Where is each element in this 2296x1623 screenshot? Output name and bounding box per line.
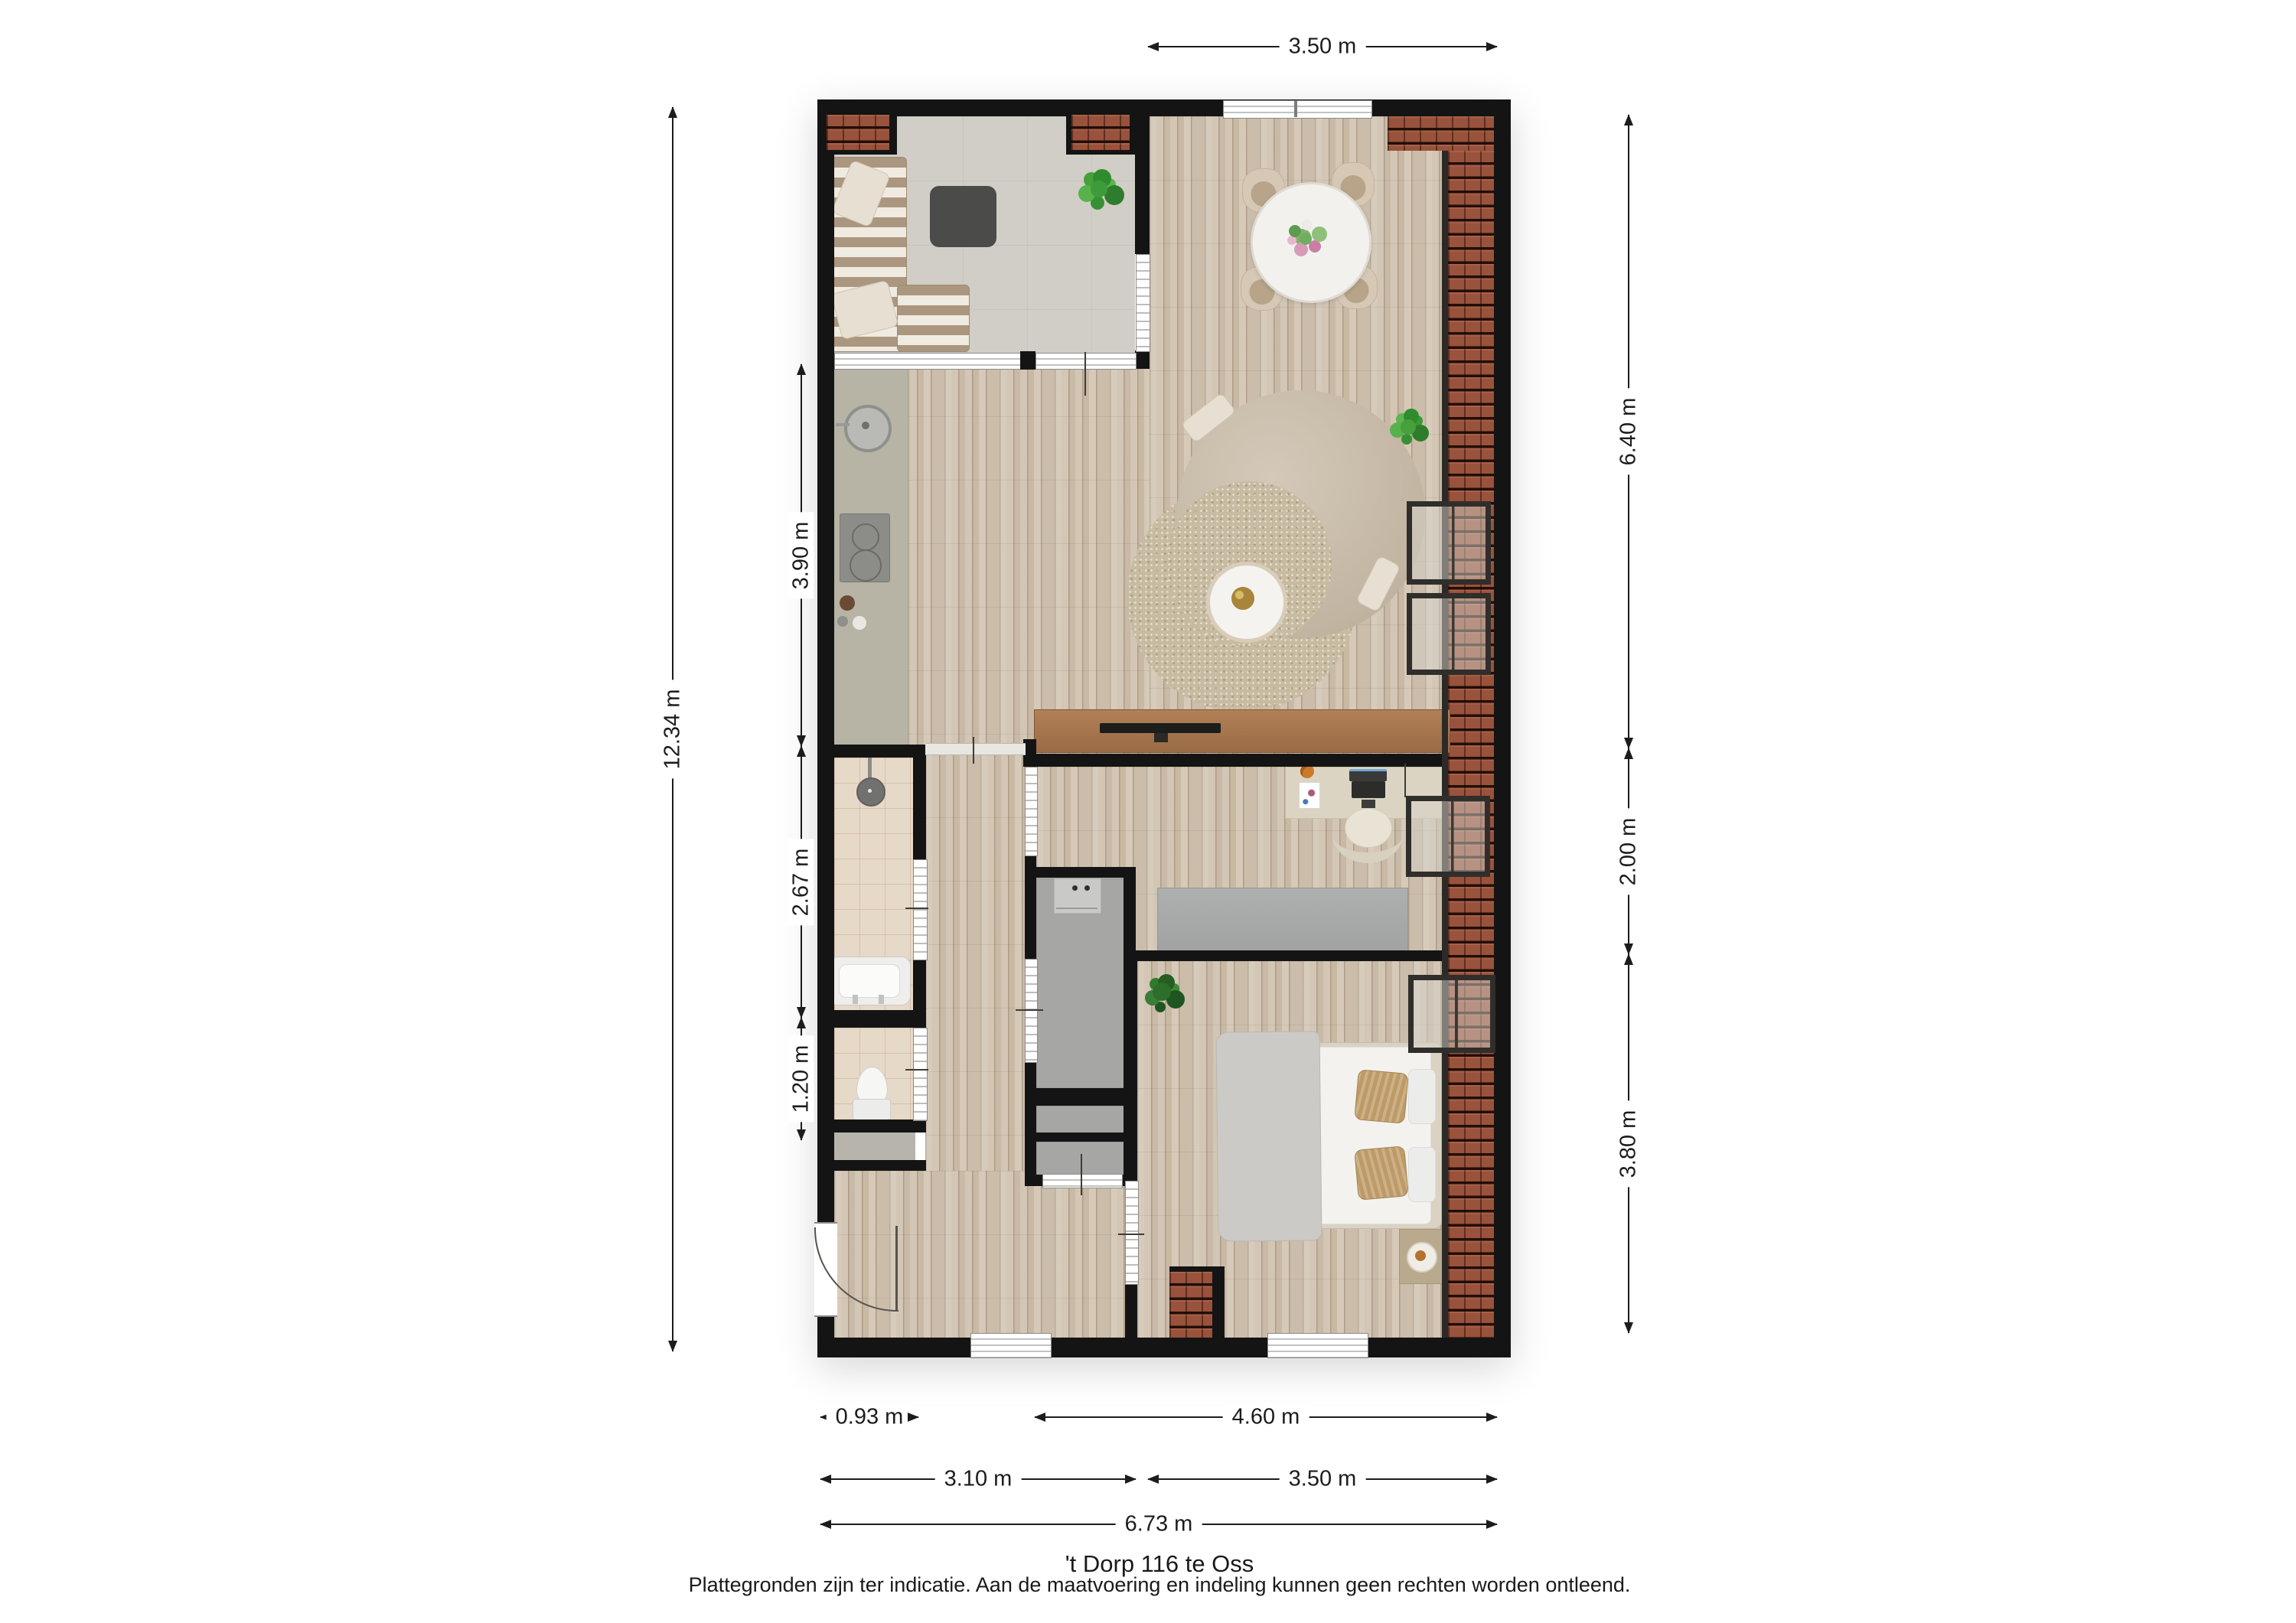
roof-tiles-top-band	[1388, 116, 1494, 151]
bed-pillow-tan	[1354, 1069, 1409, 1124]
storage-shelf-divider	[1035, 1088, 1124, 1106]
dimension-left-bathroom: 2.67 m	[801, 746, 802, 1018]
dimension-label: 6.40 m	[1616, 389, 1642, 475]
washbasin-tap	[853, 995, 858, 1004]
wall-office-bedroom	[1125, 950, 1442, 961]
leader-tick	[1118, 1234, 1144, 1235]
leader-tick	[1084, 352, 1086, 396]
wall-outer-right	[1494, 99, 1511, 1357]
shower-head-dot	[868, 789, 872, 793]
floorplan-page: 3.50 m 12.34 m 3.90 m 2.67 m 1.20 m 6.40…	[0, 0, 2296, 1623]
toilet-interior-window	[913, 1028, 928, 1121]
kitchen-sink-drain	[862, 422, 869, 429]
dimension-bottom-left-width: 3.10 m	[820, 1478, 1136, 1480]
bedroom-plant	[1153, 983, 1171, 1001]
dimension-label: 12.34 m	[660, 680, 686, 779]
leader-tick	[1081, 1154, 1082, 1195]
keyboard	[1349, 769, 1387, 781]
hall-interior-window	[1025, 767, 1038, 856]
roof-window-bedroom	[1408, 975, 1495, 1053]
dimension-top-width: 3.50 m	[1148, 46, 1497, 47]
washbasin-bowl	[839, 964, 900, 998]
wall-bathroom-north	[817, 745, 926, 758]
bed-pillow-white	[1408, 1069, 1436, 1124]
wall-meter-closet-south	[817, 1160, 926, 1171]
desk-poster	[1299, 782, 1320, 809]
dimension-label: 6.73 m	[1116, 1512, 1202, 1537]
wall-storage-north	[1026, 867, 1135, 878]
tv-foot	[1154, 733, 1168, 742]
dimension-label: 4.60 m	[1223, 1405, 1309, 1430]
wall-bathroom-south	[817, 1010, 926, 1028]
dimension-label: 3.50 m	[1280, 1467, 1366, 1492]
dimension-label: 3.50 m	[1280, 34, 1366, 60]
bed-blanket	[1216, 1031, 1322, 1241]
dimension-left-total: 12.34 m	[672, 107, 673, 1351]
coffee-set	[840, 595, 855, 611]
dimension-left-kitchen: 3.90 m	[801, 364, 802, 746]
wall-bedroom-west-lower	[1125, 1283, 1137, 1338]
monitor	[1352, 781, 1385, 798]
wall-bedroom-west-upper	[1125, 961, 1137, 1181]
dimension-right-office: 2.00 m	[1628, 748, 1629, 954]
roof-window-living-2	[1407, 593, 1491, 675]
roof-tiles-corner-inset	[827, 115, 889, 150]
balcony-table	[930, 186, 996, 247]
living-plant	[1401, 419, 1416, 435]
dimension-bottom-total: 6.73 m	[820, 1524, 1497, 1525]
dimension-label: 1.20 m	[789, 1036, 814, 1123]
dimension-left-toilet: 1.20 m	[801, 1018, 802, 1140]
wall-right-interior-line	[1442, 151, 1448, 1338]
coffee-table-tray	[1231, 587, 1254, 610]
kitchen-faucet	[836, 423, 850, 426]
threshold	[925, 743, 1026, 755]
tv	[1100, 723, 1221, 733]
bed-pillow-white	[1408, 1147, 1436, 1202]
roof-tiles-balcony-right-inset	[1071, 115, 1130, 150]
leader-tick	[1404, 764, 1406, 797]
dimension-label: 2.00 m	[1616, 808, 1642, 895]
flower-bouquet	[1300, 233, 1312, 245]
leader-tick	[1016, 1009, 1043, 1011]
roof-window-living-1	[1407, 501, 1491, 585]
balcony-plant	[1091, 181, 1107, 197]
lounge-sofa-horizontal	[897, 285, 970, 352]
wall-balcony-right-upper	[1135, 99, 1150, 254]
bedside-cup	[1415, 1250, 1426, 1261]
leader-tick	[905, 908, 928, 909]
storage-west-window	[1025, 959, 1038, 1063]
wall-bathroom-east-upper	[913, 758, 926, 859]
dimension-label: 3.90 m	[789, 512, 814, 598]
dimension-bottom-right-width: 3.50 m	[1148, 1478, 1497, 1480]
wall-toilet-south	[817, 1119, 926, 1133]
balcony-glass-wall-right	[1035, 353, 1137, 370]
leader-tick	[973, 737, 974, 764]
storage-door	[1042, 1174, 1123, 1188]
dining-window	[1223, 100, 1372, 119]
roof-tiles-bedroom-corner	[1169, 1272, 1212, 1338]
balcony-glass-wall-left	[834, 353, 1022, 370]
meter-closet-floor	[822, 1133, 915, 1160]
storage-shelf-divider	[1035, 1133, 1124, 1142]
dimension-label: 3.10 m	[935, 1467, 1022, 1492]
cooktop-burner	[852, 523, 879, 551]
wall-bedroom-tile-frame-right	[1212, 1266, 1225, 1338]
sideboard	[1034, 709, 1450, 753]
wall-outer-bottom	[817, 1338, 1511, 1357]
wardrobe	[1157, 888, 1408, 952]
storage-shelf	[1036, 1106, 1125, 1134]
dining-window-mullion	[1294, 100, 1297, 117]
roof-tiles-right-column	[1448, 151, 1494, 1338]
bedroom-bottom-window	[1267, 1333, 1368, 1358]
dimension-bottom-entrance: 0.93 m	[820, 1416, 918, 1418]
washing-machine-slot	[1056, 908, 1097, 909]
bed-pillow-tan	[1354, 1146, 1409, 1201]
wall-storage-west-lower	[1025, 1061, 1036, 1186]
balcony-glass-wall-post	[1020, 351, 1035, 370]
hallway-floor	[925, 754, 1026, 1171]
dimension-label: 3.80 m	[1616, 1100, 1642, 1187]
washing-machine-knob	[1072, 885, 1078, 891]
desk-chair-back	[1332, 807, 1403, 863]
wall-balcony-right-lower	[1135, 350, 1150, 369]
cooktop-burner	[850, 549, 882, 582]
entry-door-leaf	[895, 1226, 898, 1311]
dimension-right-bedroom: 3.80 m	[1628, 954, 1629, 1333]
wall-storage-south-left	[1026, 1175, 1042, 1186]
dimension-label: 0.93 m	[827, 1405, 913, 1430]
dimension-right-living: 6.40 m	[1628, 115, 1629, 748]
toilet-tank	[853, 1099, 891, 1120]
balcony-side-window	[1136, 254, 1150, 352]
roof-window-office	[1406, 796, 1490, 877]
leader-tick	[905, 1069, 928, 1071]
dimension-bottom-bedroom-zone: 4.60 m	[1035, 1416, 1497, 1418]
caption-disclaimer: Plattegronden zijn ter indicatie. Aan de…	[689, 1573, 1631, 1597]
dimension-label: 2.67 m	[789, 839, 814, 925]
bathroom-interior-window	[913, 859, 928, 960]
wall-living-office	[1035, 754, 1442, 767]
bedroom-glass-door	[1125, 1181, 1139, 1285]
hall-bottom-window	[970, 1333, 1052, 1358]
dining-table	[1251, 182, 1371, 303]
wall-outer-top	[817, 99, 1511, 116]
